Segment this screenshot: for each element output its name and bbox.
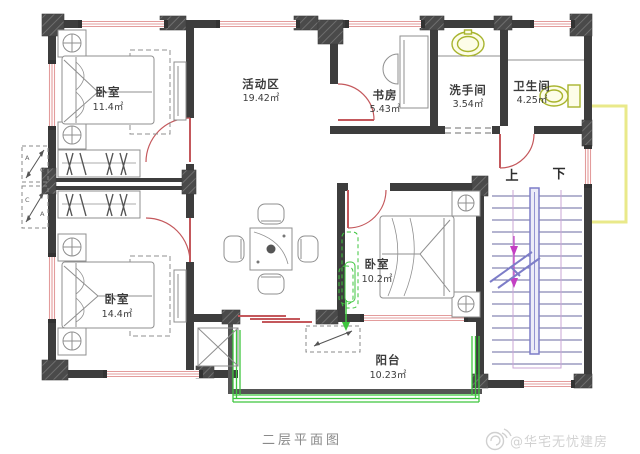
weibo-icon [487,429,512,450]
window-top-3 [345,20,425,28]
door-study [338,84,374,120]
room-name: 卧室 [96,85,121,99]
bed [380,216,454,298]
window-top-2 [216,20,300,28]
room-area: 19.42㎡ [243,93,280,104]
wardrobe-hangers [58,150,140,177]
room-name: 卧室 [365,257,390,271]
room-name: 洗手间 [449,83,487,97]
room-area: 4.25㎡ [517,95,548,106]
plan-caption: 二层平面图 [262,433,342,448]
stairs: 上 下 [490,167,582,368]
window-top-4 [530,20,575,28]
room-area: 10.23㎡ [370,370,407,381]
sliding-door-balcony [238,316,312,322]
nightstand [452,191,480,216]
room-area: 11.4㎡ [93,102,124,113]
opening-washroom-dashed [445,128,492,133]
stairs-down-label: 下 [552,167,565,182]
wardrobe-hangers [58,191,140,218]
room-area: 14.4㎡ [102,309,133,320]
chair [298,236,318,262]
room-name: 活动区 [242,77,280,91]
window-stair-bottom [520,380,575,388]
room-area: 3.54㎡ [453,99,484,110]
door-bedroom-top-left [146,118,190,162]
desk-chair [383,54,398,84]
balcony-walls [228,322,482,394]
chair [258,204,284,224]
dresser [174,62,186,120]
ac-unit-marker [22,186,48,228]
section-letter: C [40,166,45,174]
window-left-2 [48,253,56,323]
door-bathroom [500,134,534,168]
dresser [174,270,186,322]
nightstand [452,292,480,317]
floor-plan-page: 上 下 [0,0,640,454]
room-name: 卧室 [105,292,130,306]
floor-plan-drawing: 上 下 [0,0,640,454]
room-name: 阳台 [376,353,401,367]
awning-outline [592,106,626,222]
stairs-up-label: 上 [505,169,518,184]
chair [224,236,244,262]
nightstand [58,122,86,149]
window-bottom-left [103,370,203,378]
window-left-1 [48,60,56,130]
nightstand [58,30,86,57]
window-top-1 [78,20,168,28]
chair [258,274,284,294]
room-area: 5.43㎡ [370,104,401,115]
dining-table [250,228,292,270]
sink-icon [452,30,484,56]
room-name: 卫生间 [513,79,551,93]
room-area: 10.2㎡ [362,274,393,285]
nightstand [58,234,86,261]
section-letter: A [40,210,45,218]
section-letter: A [25,154,30,162]
desk [400,36,428,108]
window-right-1 [584,145,592,188]
room-name: 书房 [373,88,398,102]
watermark-handle: @华宅无忧建房 [510,434,608,450]
section-letter: C [25,196,30,204]
stair-handrail [530,188,539,354]
door-bedroom-bottom-left [146,218,190,262]
ac-unit-marker-balcony [306,326,360,352]
nightstand [58,328,86,355]
